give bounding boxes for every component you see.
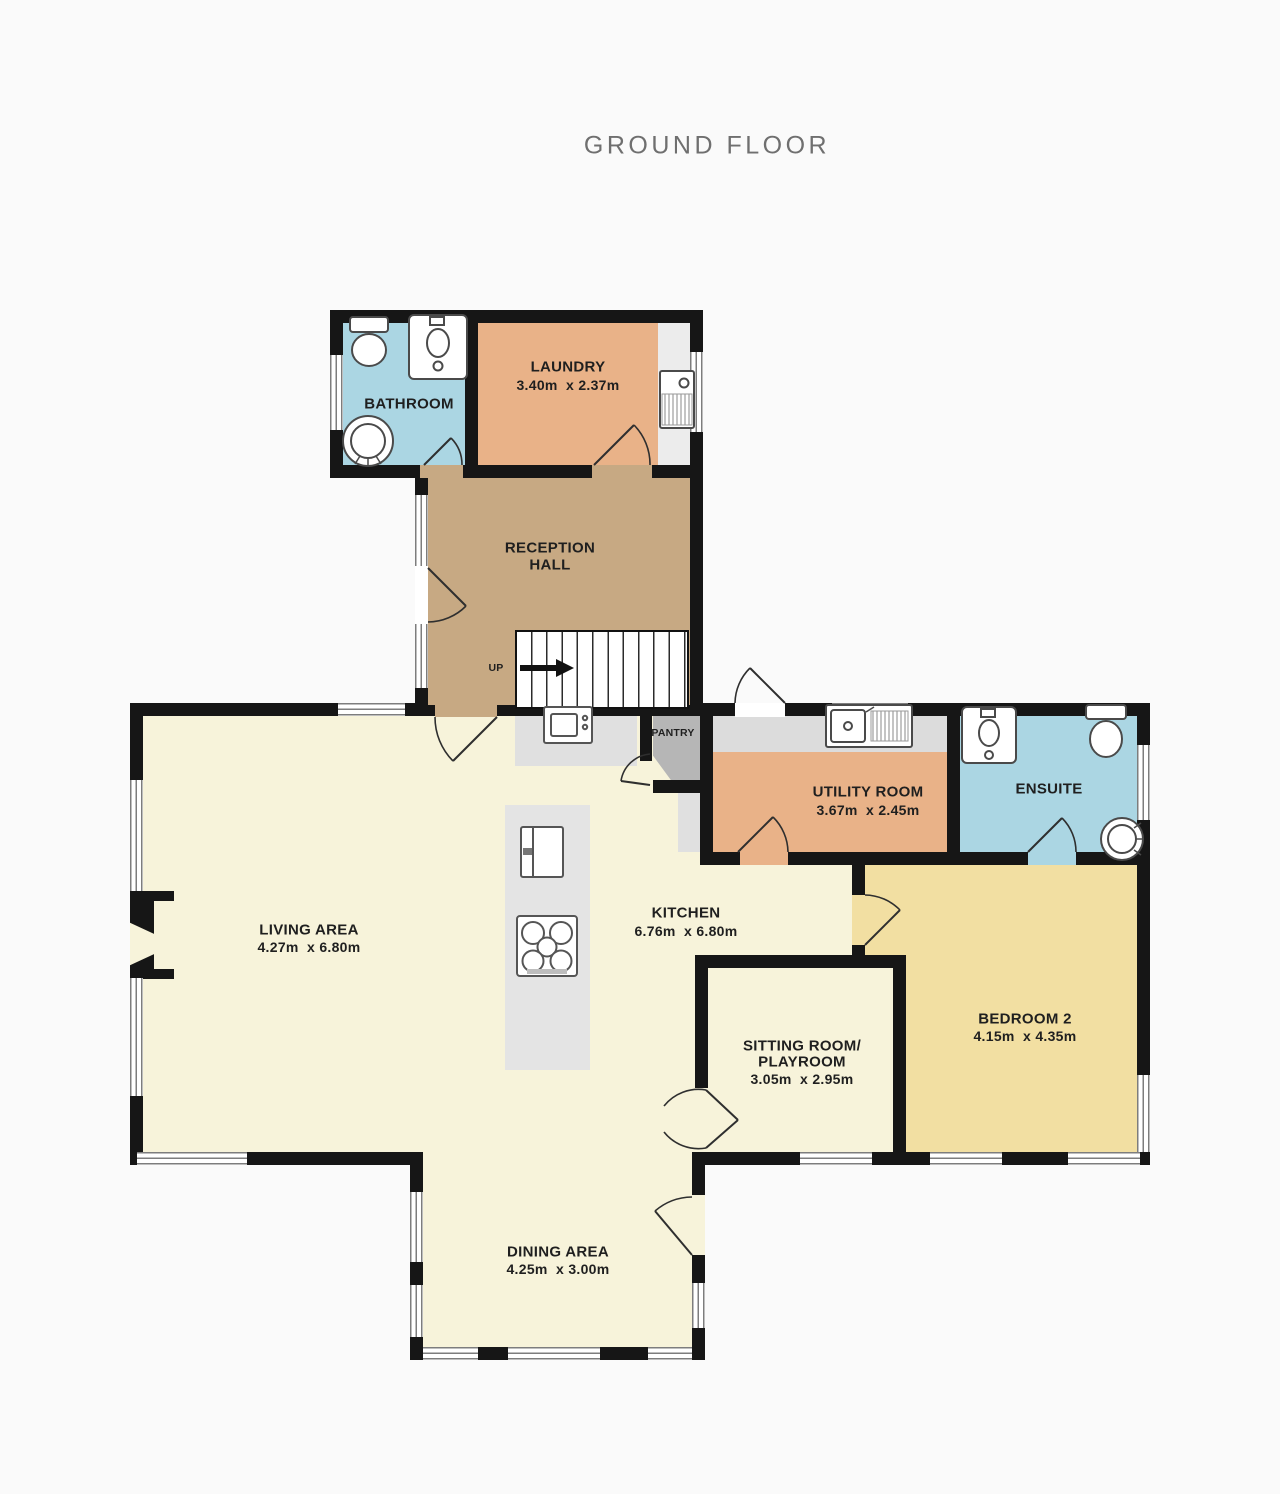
label-laundry-dims: 3.40m x 2.37m: [516, 377, 619, 393]
wall-sitting-top: [695, 955, 906, 968]
label-reception-1: RECEPTION: [505, 540, 595, 557]
label-ensuite: ENSUITE: [1015, 781, 1082, 798]
window: [832, 703, 908, 716]
wall-pantry-left: [640, 703, 652, 761]
kitchen-island: [505, 805, 590, 1070]
window: [137, 1152, 247, 1165]
page-title: GROUND FLOOR: [584, 132, 830, 161]
label-kitchen-dims: 6.76m x 6.80m: [634, 923, 737, 939]
door-opening-utility-exterior: [735, 703, 785, 717]
room-bedroom2-lower: [906, 968, 1137, 1152]
wall-sitting-right: [893, 968, 906, 1152]
window: [800, 1152, 872, 1165]
label-laundry: LAUNDRY: [531, 359, 606, 376]
window: [690, 352, 703, 432]
window: [415, 624, 428, 688]
kitchen-counter-right: [678, 793, 702, 852]
window: [1137, 745, 1150, 820]
wall-pantry-bottom: [653, 780, 713, 793]
utility-counter: [713, 716, 947, 752]
label-sitting-1: SITTING ROOM/: [743, 1038, 861, 1055]
wall-sitting-left: [695, 968, 708, 1088]
door-opening-ensuite: [1028, 852, 1076, 865]
label-sitting-2: PLAYROOM: [758, 1054, 846, 1071]
window: [410, 1285, 423, 1337]
door-opening-bathroom: [420, 465, 463, 478]
window: [1137, 1075, 1150, 1152]
window: [130, 780, 143, 891]
kitchen-counter-top: [515, 716, 637, 766]
fireplace-hearth: [154, 901, 174, 969]
door-opening-front-entrance: [415, 566, 428, 624]
window: [410, 1192, 423, 1262]
window: [423, 1347, 478, 1360]
label-utility-dims: 3.67m x 2.45m: [816, 802, 919, 818]
window: [1068, 1152, 1140, 1165]
door-opening-utility: [740, 852, 788, 865]
wall-bedroom-left-a: [852, 865, 865, 895]
label-bedroom2: BEDROOM 2: [978, 1011, 1072, 1028]
floor-plan-canvas: GROUND FLOOR: [0, 0, 1280, 1494]
label-living: LIVING AREA: [259, 922, 358, 939]
laundry-counter: [658, 323, 690, 465]
window: [415, 495, 428, 566]
window: [330, 355, 343, 430]
label-utility: UTILITY ROOM: [813, 784, 924, 801]
label-dining-dims: 4.25m x 3.00m: [506, 1261, 609, 1277]
wall-utility-ensuite: [947, 716, 960, 852]
room-laundry: [478, 323, 658, 465]
window: [930, 1152, 1002, 1165]
door-opening-hall-kitchen: [435, 703, 497, 717]
window: [338, 703, 405, 716]
staircase: [515, 630, 689, 709]
label-living-dims: 4.27m x 6.80m: [257, 939, 360, 955]
door-opening-dining: [692, 1195, 705, 1255]
label-pantry: PANTRY: [651, 727, 694, 739]
label-bathroom: BATHROOM: [364, 396, 454, 413]
door-opening-bedroom2: [852, 895, 865, 945]
label-kitchen: KITCHEN: [652, 905, 721, 922]
label-sitting-dims: 3.05m x 2.95m: [750, 1071, 853, 1087]
window: [130, 978, 143, 1096]
label-dining: DINING AREA: [507, 1244, 609, 1261]
room-bedroom2-upper: [865, 865, 1137, 968]
door-opening-sitting-room: [695, 1088, 708, 1150]
window: [648, 1347, 692, 1360]
label-reception-2: HALL: [529, 557, 570, 574]
label-bedroom2-dims: 4.15m x 4.35m: [973, 1028, 1076, 1044]
label-stairs-up: UP: [489, 662, 504, 674]
room-bathroom: [343, 323, 465, 465]
door-opening-laundry: [592, 465, 652, 478]
window: [692, 1283, 705, 1328]
window: [508, 1347, 600, 1360]
